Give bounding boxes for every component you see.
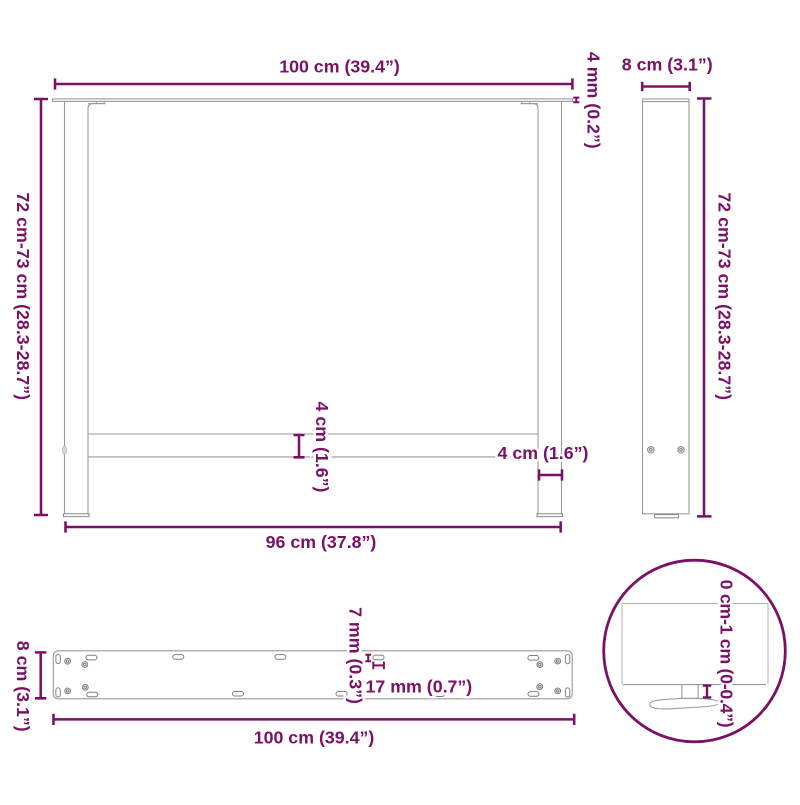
svg-text:4 cm (1.6”): 4 cm (1.6”) [312,402,332,493]
svg-text:72 cm-73 cm (28.3-28.7”): 72 cm-73 cm (28.3-28.7”) [13,192,33,400]
svg-text:8 cm (3.1”): 8 cm (3.1”) [13,641,33,732]
svg-text:17 mm (0.7”): 17 mm (0.7”) [366,676,473,696]
svg-text:100 cm (39.4”): 100 cm (39.4”) [279,56,400,76]
svg-text:100 cm (39.4”): 100 cm (39.4”) [254,728,375,748]
svg-text:8 cm (3.1”): 8 cm (3.1”) [622,55,713,75]
svg-text:4 cm (1.6”): 4 cm (1.6”) [498,443,589,463]
svg-text:0 cm-1 cm (0-0.4”): 0 cm-1 cm (0-0.4”) [717,580,737,728]
svg-text:7 mm (0.3”): 7 mm (0.3”) [346,607,366,704]
svg-text:4 mm (0.2”): 4 mm (0.2”) [584,52,604,149]
svg-text:72 cm-73 cm (28.3-28.7”): 72 cm-73 cm (28.3-28.7”) [715,192,735,400]
svg-text:96 cm (37.8”): 96 cm (37.8”) [266,532,377,552]
